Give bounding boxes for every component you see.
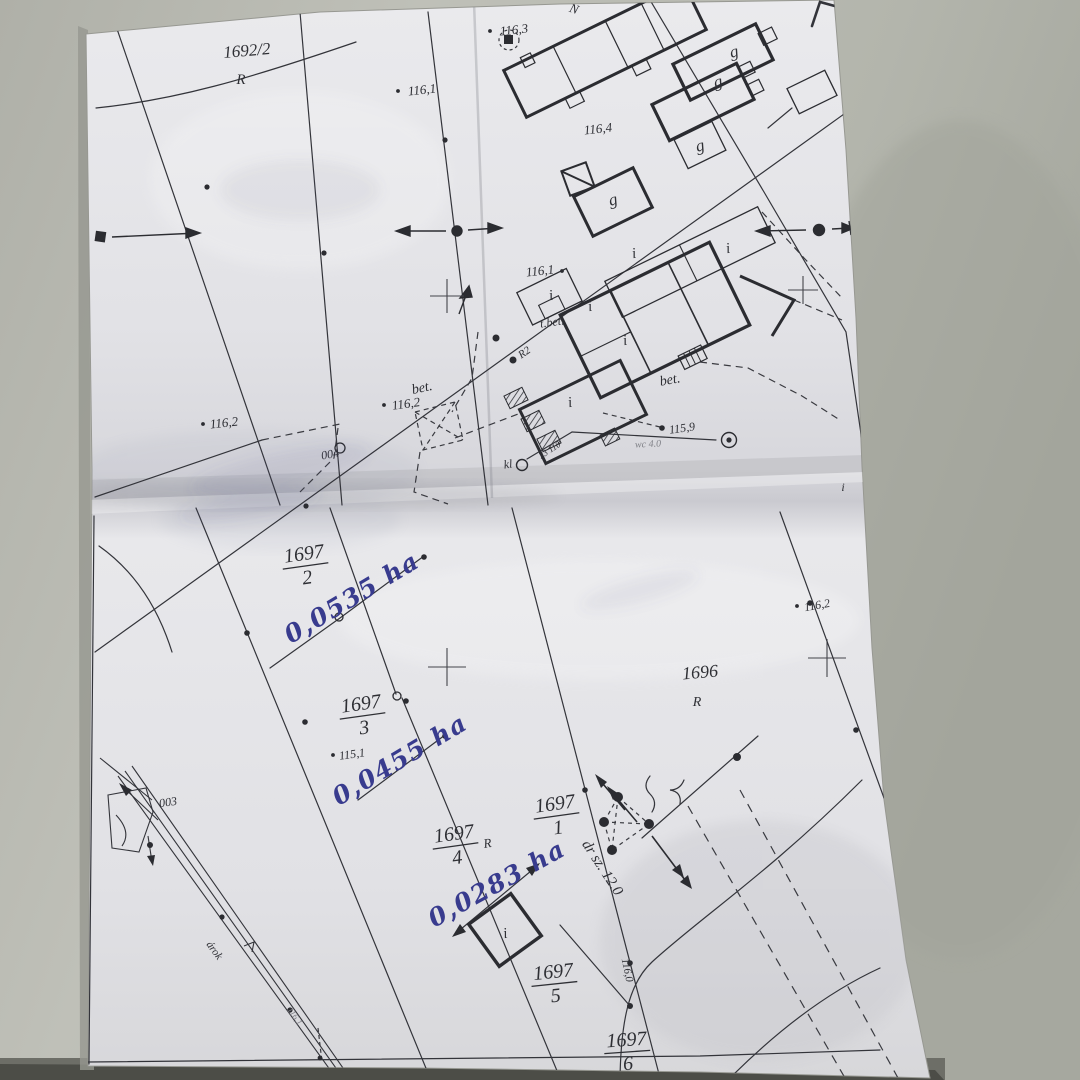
photo-of-cadastral-map: 1692/2 R 116,3 N 116,1 g g g g 116,4 i i…	[0, 0, 1080, 1080]
cadastral-map-photo: 1692/2 R 116,3 N 116,1 g g g g 116,4 i i…	[0, 0, 1080, 1080]
vignette	[0, 0, 1080, 1080]
